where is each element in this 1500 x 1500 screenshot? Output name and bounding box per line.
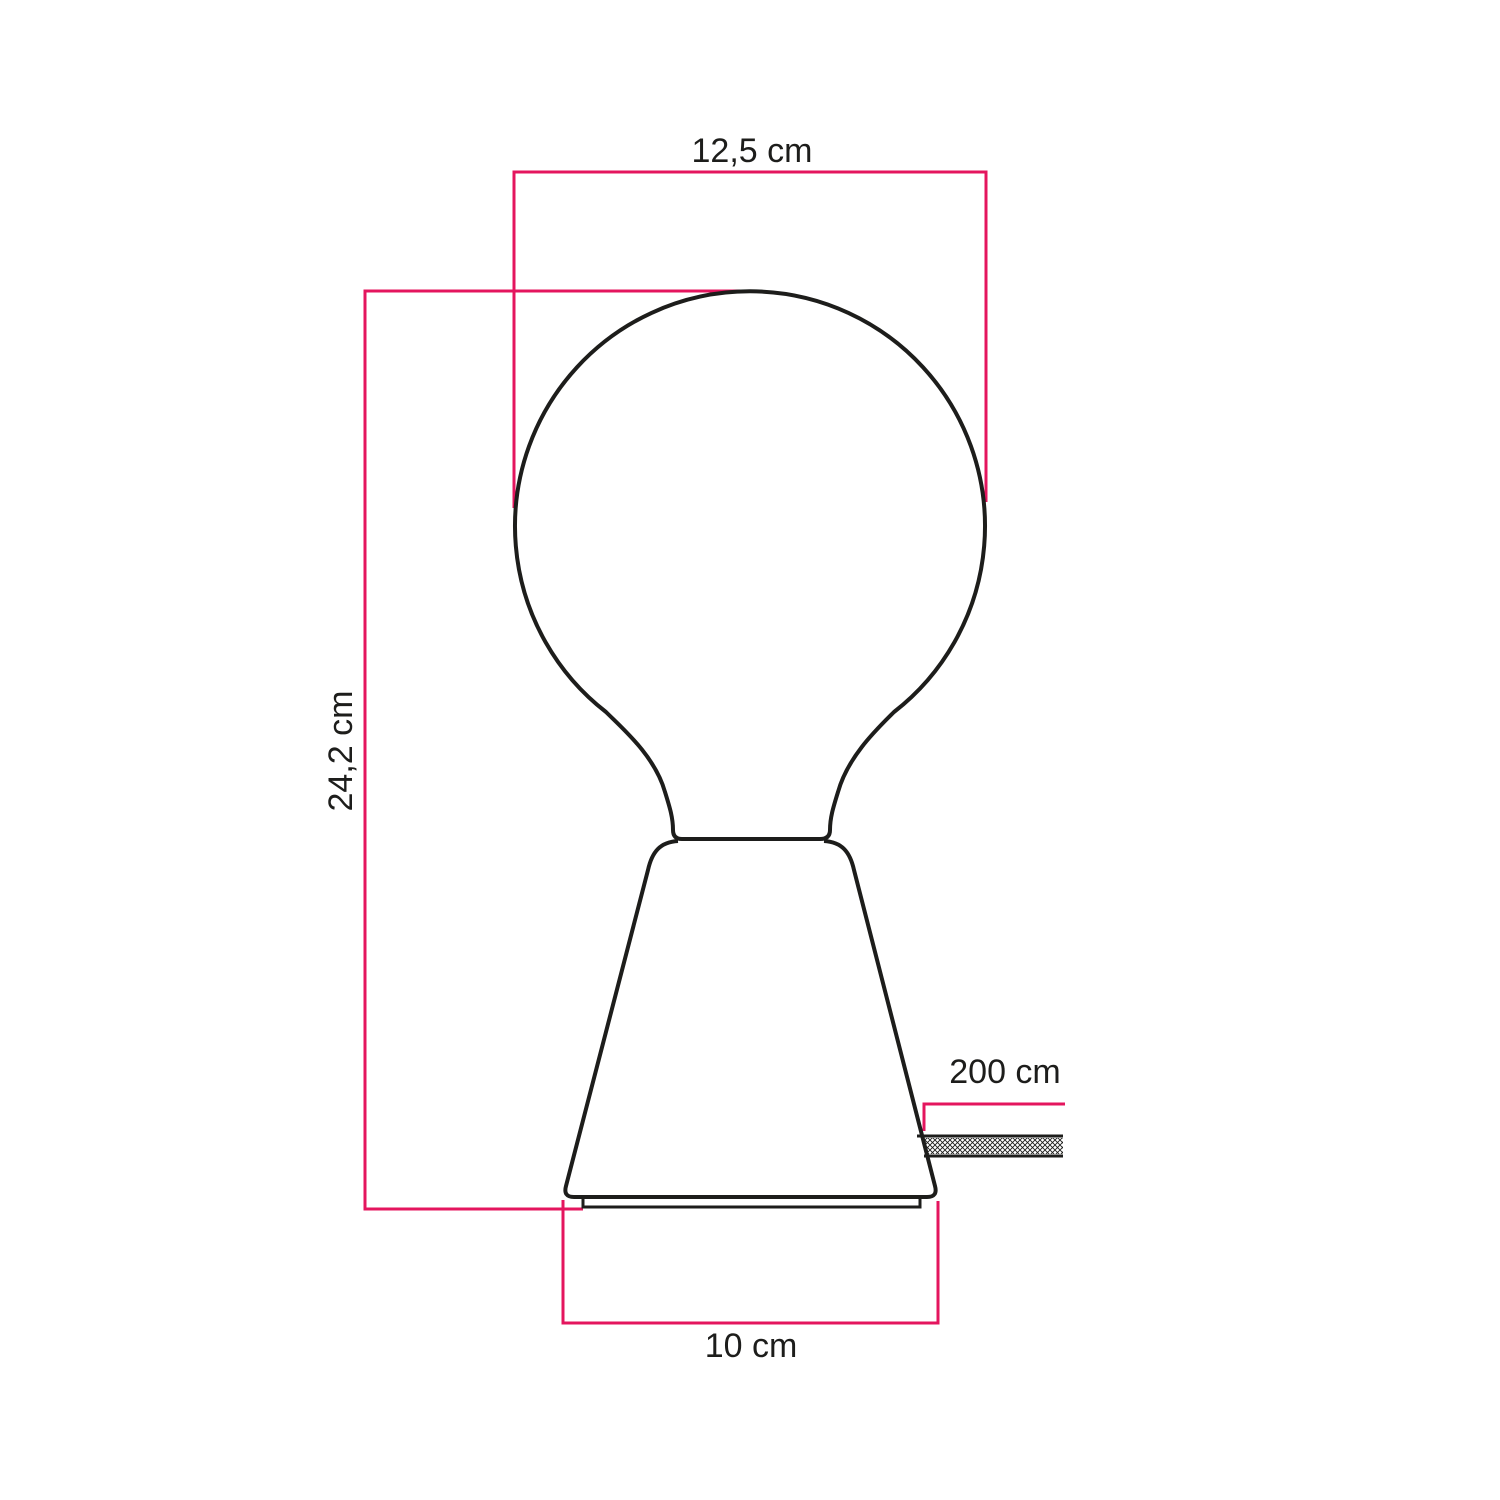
diagram-canvas: 12,5 cm 24,2 cm 200 cm 10 cm <box>0 0 1500 1500</box>
fabric-cable <box>921 1138 1063 1154</box>
base-foot-plate <box>583 1199 920 1207</box>
cone-base-outline <box>565 841 935 1197</box>
label-base-diameter: 10 cm <box>705 1327 798 1365</box>
label-cable-length: 200 cm <box>949 1053 1061 1091</box>
lamp-dimension-diagram: 12,5 cm 24,2 cm 200 cm 10 cm <box>0 0 1500 1500</box>
dimension-line-cable-length <box>924 1104 1065 1131</box>
label-bulb-diameter: 12,5 cm <box>692 132 813 170</box>
globe-bulb-outline <box>515 291 985 839</box>
dimension-box-total-height <box>365 291 740 1209</box>
dimension-box-bulb-diameter <box>514 172 986 508</box>
dimension-box-base-diameter <box>563 1200 938 1323</box>
label-total-height: 24,2 cm <box>322 691 360 812</box>
